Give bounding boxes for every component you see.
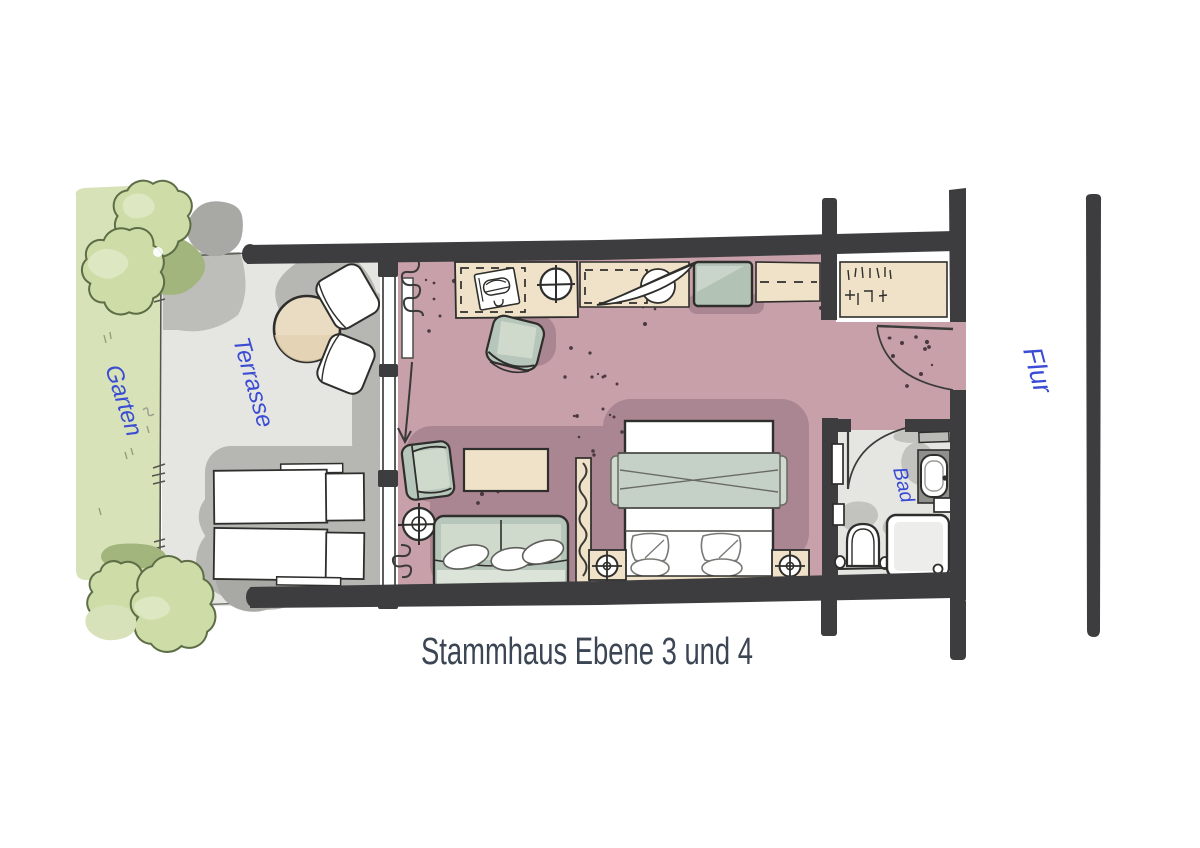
svg-text:Stammhaus Ebene 3 und 4: Stammhaus Ebene 3 und 4	[421, 631, 753, 673]
